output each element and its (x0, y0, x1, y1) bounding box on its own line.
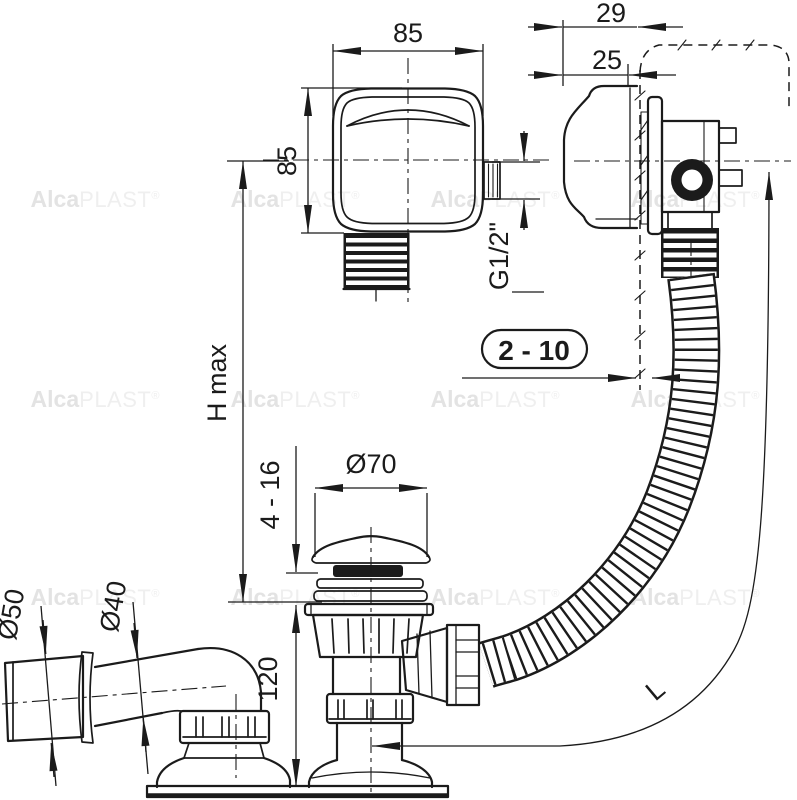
bottom-thickness-label: 4 - 16 (255, 460, 285, 529)
overflow-flange (648, 97, 662, 234)
elbow-skirt (184, 743, 264, 758)
thread-size-label: G1/2" (484, 222, 514, 290)
outlet-socket-diameter-label: Ø50 (0, 587, 30, 642)
bath-waste-overflow-drawing: AlcaPLAST® (0, 0, 797, 800)
knob-corrugated-pipe (344, 233, 410, 301)
overflow-body-peg-upper (719, 128, 736, 143)
panel-gap-badge: 2 - 10 (462, 330, 668, 378)
outlet-pipe-centerline (2, 686, 226, 704)
plug-diameter-label: Ø70 (345, 449, 396, 479)
overflow-body-peg-lower (719, 170, 742, 186)
technical-drawing-page: AlcaPLAST® (0, 0, 797, 800)
drain-nut (327, 694, 413, 723)
hose-length-label: L (640, 674, 671, 707)
drain-waste-assembly (305, 527, 479, 795)
knob-width-label: 85 (393, 18, 423, 48)
outlet-elbow (198, 648, 261, 710)
trap-height-label: 120 (253, 656, 283, 701)
depth-total-label: 29 (596, 0, 626, 28)
outlet-tube-bottom (95, 713, 162, 726)
trap-base-plate (147, 786, 448, 797)
plug-seal-band (333, 565, 403, 577)
depth-front-label: 25 (592, 45, 622, 75)
elbow-nut (180, 711, 269, 743)
outlet-tube-top (95, 649, 198, 667)
hose-union-nut (447, 625, 479, 705)
panel-thickness-label: 2 - 10 (498, 335, 570, 366)
drain-side-outlet (402, 628, 447, 702)
knob-side-profile (564, 86, 637, 228)
outlet-pipe-assembly (2, 648, 290, 787)
height-max-label: H max (202, 344, 232, 423)
